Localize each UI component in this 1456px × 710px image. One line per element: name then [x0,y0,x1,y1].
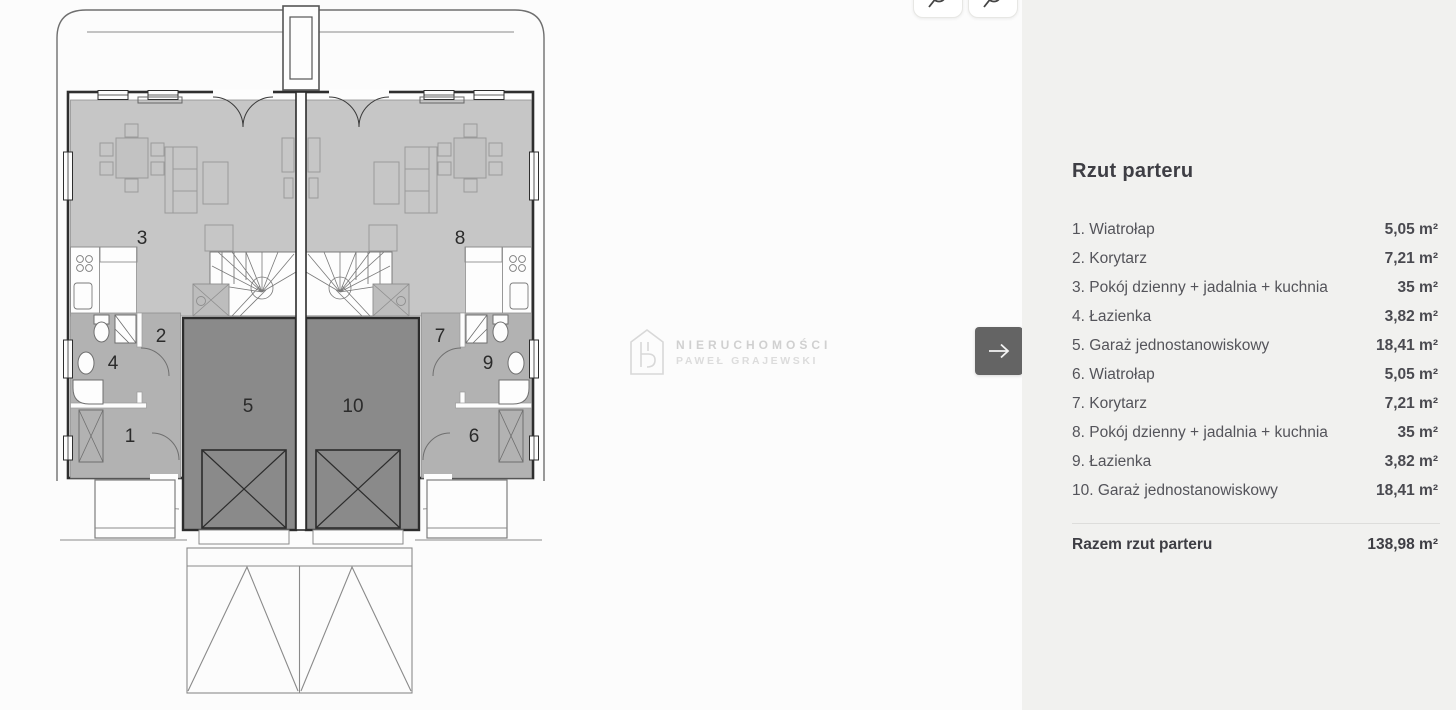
total-row: Razem rzut parteru 138,98 m² [1072,536,1438,554]
room-label-3: 3 [137,228,148,249]
room-name: 2. Korytarz [1072,250,1147,268]
room-list-item: 8. Pokój dzienny + jadalnia + kuchnia 35… [1072,424,1438,453]
room-label-2: 2 [156,326,167,347]
room-list-item: 1. Wiatrołap 5,05 m² [1072,221,1438,250]
room-area: 5,05 m² [1385,366,1438,384]
total-label: Razem rzut parteru [1072,536,1212,554]
room-label-9: 9 [483,353,494,374]
room-name: 3. Pokój dzienny + jadalnia + kuchnia [1072,279,1328,297]
room-area: 18,41 m² [1376,337,1438,355]
room-list: 1. Wiatrołap 5,05 m² 2. Korytarz 7,21 m²… [1072,221,1438,511]
room-label-8: 8 [455,228,466,249]
floor-plan-viewer: 3 8 2 7 4 9 1 6 5 10 NIERUCHOMOŚCI PAWEŁ… [0,0,1022,710]
room-area: 7,21 m² [1385,395,1438,413]
room-area: 3,82 m² [1385,453,1438,471]
total-area: 138,98 m² [1367,536,1438,554]
room-label-1: 1 [125,426,136,447]
floor-summary-panel: Rzut parteru 1. Wiatrołap 5,05 m² 2. Kor… [1022,0,1456,710]
garage [183,318,296,544]
room-name: 4. Łazienka [1072,308,1151,326]
room-area: 35 m² [1398,424,1439,442]
terrace-door-opening [213,89,273,97]
room-name: 7. Korytarz [1072,395,1147,413]
room-name: 6. Wiatrołap [1072,366,1155,384]
room-name: 1. Wiatrołap [1072,221,1155,239]
room-label-6: 6 [469,426,480,447]
room-label-7: 7 [435,326,446,347]
room-list-item: 3. Pokój dzienny + jadalnia + kuchnia 35… [1072,279,1438,308]
room-label-4: 4 [108,353,119,374]
arrow-right-icon [987,342,1011,360]
room-area: 18,41 m² [1376,482,1438,500]
panel-divider [1072,523,1440,524]
room-list-item: 5. Garaż jednostanowiskowy 18,41 m² [1072,337,1438,366]
room-area: 5,05 m² [1385,221,1438,239]
room-area: 3,82 m² [1385,308,1438,326]
magnifier-plus-icon [926,0,950,11]
magnifier-minus-icon [981,0,1005,11]
room-list-item: 2. Korytarz 7,21 m² [1072,250,1438,279]
chimney [283,6,319,90]
room-name: 8. Pokój dzienny + jadalnia + kuchnia [1072,424,1328,442]
room-area: 7,21 m² [1385,250,1438,268]
party-wall [296,92,306,530]
room-name: 9. Łazienka [1072,453,1151,471]
page: 3 8 2 7 4 9 1 6 5 10 NIERUCHOMOŚCI PAWEŁ… [0,0,1456,710]
dwelling-unit-right [306,89,542,544]
panel-title: Rzut parteru [1072,160,1193,183]
driveway [187,548,412,693]
room-list-item: 7. Korytarz 7,21 m² [1072,395,1438,424]
room-list-item: 4. Łazienka 3,82 m² [1072,308,1438,337]
room-list-item: 10. Garaż jednostanowiskowy 18,41 m² [1072,482,1438,511]
room-label-10: 10 [342,396,363,417]
next-image-button[interactable] [975,327,1023,375]
room-label-5: 5 [243,396,254,417]
room-list-item: 9. Łazienka 3,82 m² [1072,453,1438,482]
room-name: 10. Garaż jednostanowiskowy [1072,482,1278,500]
room-list-item: 6. Wiatrołap 5,05 m² [1072,366,1438,395]
zoom-in-button[interactable] [913,0,963,18]
dwelling-unit-left [60,89,296,544]
room-area: 35 m² [1398,279,1439,297]
porch [95,480,175,538]
room-name: 5. Garaż jednostanowiskowy [1072,337,1269,355]
floor-plan: 3 8 2 7 4 9 1 6 5 10 [0,0,1022,710]
zoom-out-button[interactable] [968,0,1018,18]
